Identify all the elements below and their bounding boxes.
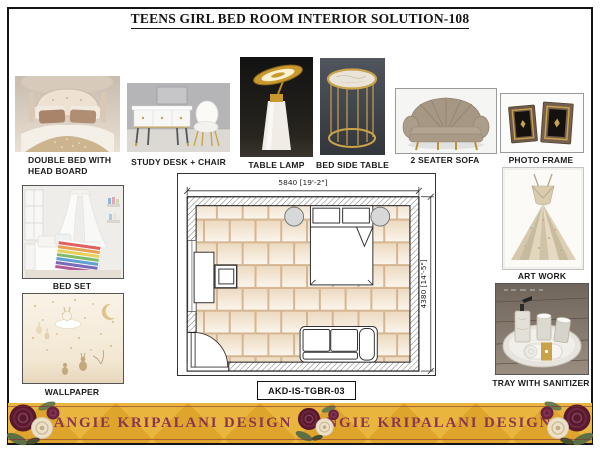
bed-side-table-label-text: BED SIDE TABLE	[305, 160, 400, 171]
plan-chair	[215, 265, 237, 288]
double-bed-label-line1: DOUBLE BED WITH	[28, 155, 128, 166]
table-lamp-label: TABLE LAMP	[238, 160, 315, 171]
plan-bed	[310, 206, 372, 285]
dimension-width-text: 5840 [19'-2"]	[278, 178, 327, 187]
photo-frame-image	[501, 94, 583, 152]
page-title: TEENS GIRL BED ROOM INTERIOR SOLUTION-10…	[0, 11, 600, 29]
design-board-page: TEENS GIRL BED ROOM INTERIOR SOLUTION-10…	[0, 0, 600, 450]
sofa-photo	[395, 88, 497, 154]
photo-frame-label-text: PHOTO FRAME	[495, 155, 587, 166]
mirror	[157, 87, 187, 104]
tray-label-text: TRAY WITH SANITIZER	[486, 378, 596, 389]
plan-desk	[194, 252, 214, 302]
bed-side-table-label: BED SIDE TABLE	[305, 160, 400, 171]
bed-set-label: BED SET	[22, 281, 122, 292]
tray-image	[496, 284, 588, 374]
table-lamp-label-text: TABLE LAMP	[238, 160, 315, 171]
bed-side-table-image	[320, 58, 385, 155]
dimension-width-line	[184, 187, 422, 196]
floor-plan: 5840 [19'-2"] 4380 [14'-5"]	[177, 173, 436, 376]
photo-frame-label: PHOTO FRAME	[495, 155, 587, 166]
study-desk-photo	[127, 83, 230, 152]
table-lamp-image	[240, 57, 313, 157]
art-work-label: ART WORK	[502, 271, 582, 282]
plan-side-table-left	[285, 207, 304, 226]
wallpaper-image	[23, 294, 123, 383]
marble-top	[328, 70, 376, 89]
floral-cluster-left-icon	[5, 397, 63, 449]
rainbow-duvet	[55, 239, 101, 275]
floral-cluster-right-icon	[537, 397, 595, 449]
art-work-photo	[502, 167, 584, 270]
brand-name-right: ANGIE KRIPALANI DESIGN	[306, 403, 560, 443]
frame-left	[508, 105, 537, 143]
brand-name-left: ANGIE KRIPALANI DESIGN	[46, 403, 300, 443]
sofa-label: 2 SEATER SOFA	[390, 155, 500, 166]
door-leaf	[191, 332, 195, 367]
double-bed-photo	[15, 76, 120, 152]
brand-banner: ANGIE KRIPALANI DESIGN ANGIE KRIPALANI D…	[8, 403, 592, 443]
study-desk-image	[127, 83, 230, 152]
sofa-image	[396, 89, 496, 153]
study-desk-label-text: STUDY DESK + CHAIR	[122, 157, 235, 168]
dimension-height-text: 4380 [14'-5"]	[419, 259, 428, 308]
bed-set-photo	[22, 185, 124, 279]
floral-cluster-middle-icon	[294, 402, 342, 445]
wallpaper-photo	[22, 293, 124, 384]
double-bed-label: DOUBLE BED WITH HEAD BOARD	[28, 155, 128, 177]
page-title-text: TEENS GIRL BED ROOM INTERIOR SOLUTION-10…	[131, 11, 470, 29]
drawing-code-text: AKD-IS-TGBR-03	[268, 386, 345, 396]
sofa-label-text: 2 SEATER SOFA	[390, 155, 500, 166]
bed-side-table-photo	[320, 58, 385, 155]
double-bed-label-line2: HEAD BOARD	[28, 166, 128, 177]
tray-photo	[495, 283, 589, 375]
plan-side-table-right	[371, 207, 390, 226]
tray-label: TRAY WITH SANITIZER	[486, 378, 596, 389]
study-desk-label: STUDY DESK + CHAIR	[122, 157, 235, 168]
double-bed-image	[15, 76, 120, 152]
bed-set-image	[23, 186, 123, 278]
bed-set-label-text: BED SET	[22, 281, 122, 292]
photo-frame-photo	[500, 93, 584, 153]
art-work-image	[503, 168, 583, 269]
rolled-towel	[524, 343, 562, 361]
drawing-code-box: AKD-IS-TGBR-03	[257, 381, 356, 400]
plan-sofa	[300, 326, 377, 362]
floor-plan-drawing: 5840 [19'-2"] 4380 [14'-5"]	[178, 174, 435, 375]
frame-right	[541, 102, 574, 144]
table-lamp-photo	[240, 57, 313, 157]
art-work-label-text: ART WORK	[502, 271, 582, 282]
